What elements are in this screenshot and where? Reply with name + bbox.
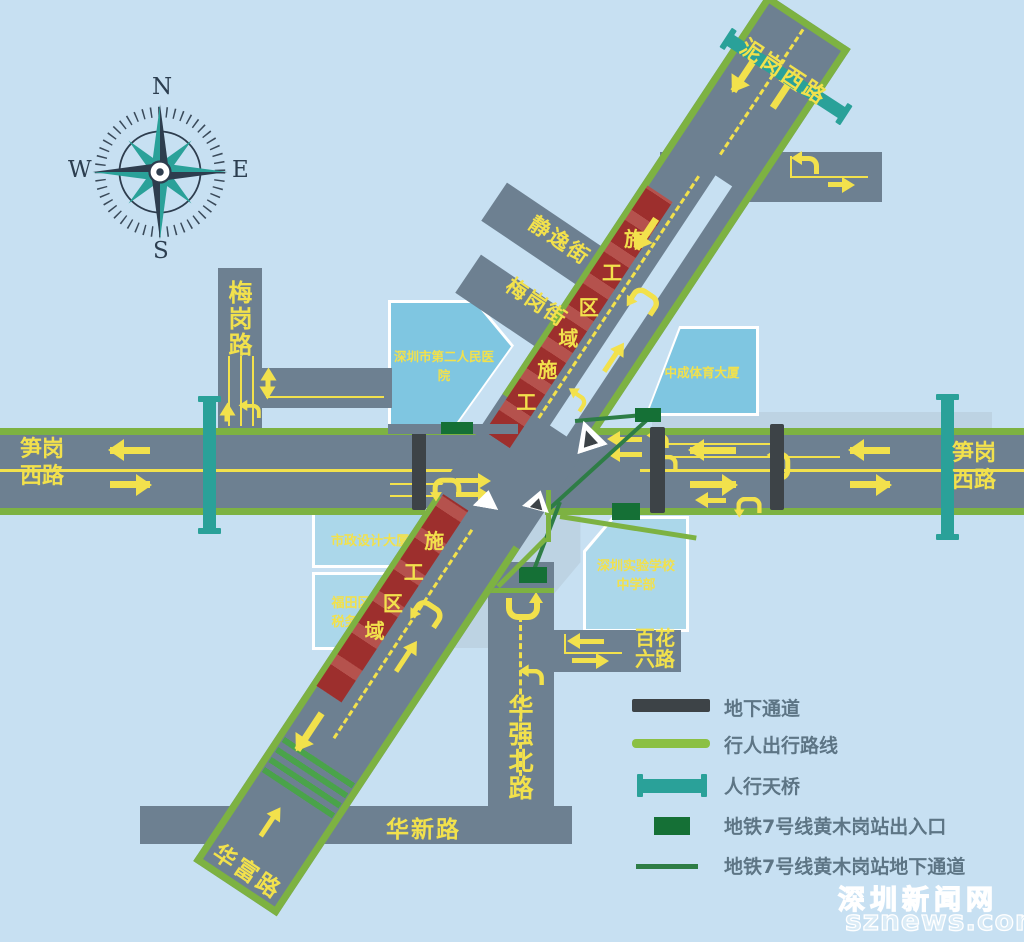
underground-passage <box>770 424 784 510</box>
lane-arrow <box>110 481 150 488</box>
turn-arrow <box>525 669 544 685</box>
legend-underground-passage-icon <box>632 699 710 712</box>
compass-west: W <box>68 157 92 183</box>
building-sports-tower: 中成体育大厦 <box>645 326 759 416</box>
lane-arrow <box>572 658 604 663</box>
turn-arrow <box>244 404 261 418</box>
road-label-huaqiang-bei: 华强北路 <box>507 694 535 802</box>
turn-arrow <box>798 156 819 174</box>
metro-entrance <box>519 567 547 583</box>
lane-arrow <box>259 810 280 838</box>
road-label-sungang-left: 笋岗西路 <box>18 436 66 490</box>
lane-arrow <box>456 478 486 483</box>
legend-label: 地铁7号线黄木岗站地下通道 <box>724 852 965 879</box>
construction-char: 工 <box>599 257 625 286</box>
legend-pedestrian-route-icon <box>632 739 710 748</box>
compass-north: N <box>152 74 172 100</box>
legend-label: 人行天桥 <box>724 772 800 799</box>
construction-char: 工 <box>513 386 539 415</box>
center-line <box>0 469 455 472</box>
legend-footbridge-icon <box>642 779 702 793</box>
legend-label: 行人出行路线 <box>724 731 838 758</box>
legend-label: 地下通道 <box>724 694 800 721</box>
construction-char: 区 <box>380 588 406 617</box>
construction-char: 施 <box>421 525 447 554</box>
road-meigang-branch <box>262 368 392 408</box>
traffic-map: 深圳市第二人民医院 中成体育大厦 市政设计大厦 福田区税务局 深圳实验学校中学部 <box>0 0 1024 942</box>
compass-rose-icon <box>85 97 235 247</box>
lane-arrow <box>690 447 736 454</box>
lane-arrow <box>394 643 416 672</box>
lane-arrow <box>294 711 324 752</box>
watermark-site-url: sznews.com <box>845 904 1024 937</box>
road-label-baihua-liu: 百花六路 <box>633 628 677 670</box>
road-label-meigang-lu: 梅岗路 <box>227 280 254 358</box>
construction-char: 工 <box>401 556 427 585</box>
lane-line <box>266 396 384 398</box>
lane-arrow <box>850 447 890 454</box>
lane-arrow <box>110 447 150 454</box>
building-label-hospital: 深圳市第二人民医院 <box>391 346 497 384</box>
pedestrian-route <box>546 490 551 542</box>
lane-arrow <box>690 481 736 488</box>
road-huaxin-lu <box>140 806 572 844</box>
footbridge <box>203 402 216 528</box>
uturn-arrow <box>506 598 540 620</box>
underground-passage <box>412 430 426 510</box>
metro-entrance <box>612 503 640 520</box>
lane-arrow <box>700 498 726 503</box>
road-label-huaxin: 华新路 <box>386 810 461 844</box>
construction-char: 域 <box>362 615 388 644</box>
legend-metro-line-icon <box>636 864 698 869</box>
lane-line <box>240 356 242 426</box>
uturn-arrow <box>410 596 446 629</box>
construction-char: 区 <box>576 292 602 321</box>
underground-passage <box>650 427 665 513</box>
lane-arrow <box>850 481 890 488</box>
compass-east: E <box>232 157 249 183</box>
construction-char: 施 <box>534 354 560 383</box>
lane-arrow <box>828 182 850 187</box>
road-label-sungang-right: 笋岗西路 <box>950 440 998 494</box>
metro-entrance <box>441 422 473 434</box>
lane-arrow <box>612 452 642 457</box>
lane-arrow <box>225 408 230 422</box>
lane-arrow <box>266 383 271 395</box>
building-label-experimental-school: 深圳实验学校中学部 <box>594 555 678 593</box>
legend-metro-entrance-icon <box>654 817 690 835</box>
legend-label: 地铁7号线黄木岗站出入口 <box>724 812 946 839</box>
lane-arrow <box>456 492 486 497</box>
building-label-municipal-design: 市政设计大厦 <box>331 530 409 549</box>
uturn-arrow <box>736 497 762 514</box>
compass-south: S <box>153 238 169 264</box>
compass: N E S W <box>60 60 270 270</box>
building-label-sports-tower: 中成体育大厦 <box>664 362 739 381</box>
metro-entrance <box>635 408 661 422</box>
lane-arrow <box>572 639 604 644</box>
